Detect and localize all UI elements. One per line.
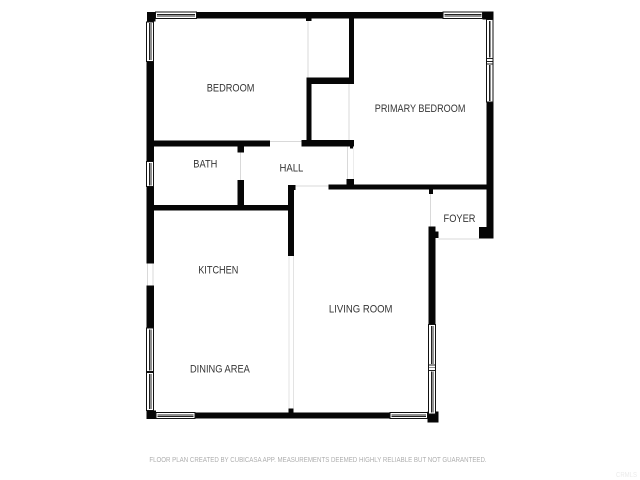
svg-text:PRIMARY BEDROOM: PRIMARY BEDROOM bbox=[375, 103, 466, 115]
svg-text:BATH: BATH bbox=[193, 159, 217, 171]
svg-text:LIVING ROOM: LIVING ROOM bbox=[329, 303, 393, 315]
svg-text:FLOOR PLAN CREATED BY CUBICASA: FLOOR PLAN CREATED BY CUBICASA APP. MEAS… bbox=[149, 457, 486, 464]
svg-text:BEDROOM: BEDROOM bbox=[207, 82, 255, 94]
svg-text:CRMLS: CRMLS bbox=[616, 470, 637, 479]
svg-text:DINING AREA: DINING AREA bbox=[190, 364, 250, 376]
svg-text:FOYER: FOYER bbox=[444, 213, 476, 225]
svg-text:KITCHEN: KITCHEN bbox=[198, 265, 238, 277]
svg-text:HALL: HALL bbox=[279, 163, 303, 175]
